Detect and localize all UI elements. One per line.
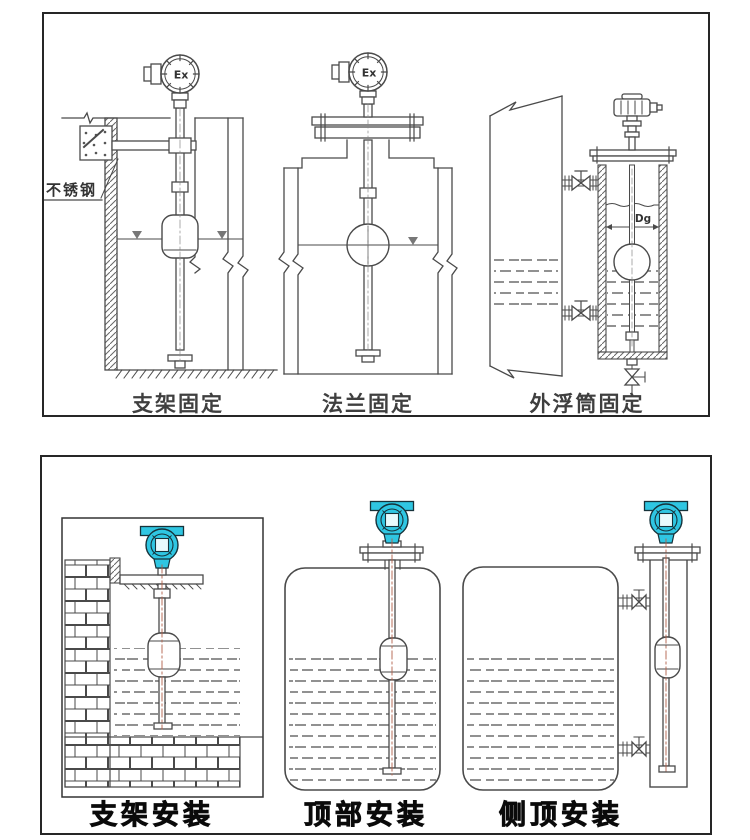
isolation-valve-icon [572, 176, 581, 190]
transmitter-head-icon [645, 502, 688, 544]
liquid [289, 657, 436, 787]
chamber-top-flange [590, 150, 676, 156]
brick-floor [65, 737, 240, 787]
tank-liquid [494, 258, 558, 314]
ex-marking: Ex [362, 67, 377, 80]
liquid [467, 657, 614, 787]
stainless-steel-label: 不锈钢 [46, 181, 97, 199]
mounting-flange [312, 117, 423, 125]
caption-external-chamber-fixing: 外浮筒固定 [530, 392, 645, 415]
caption-bracket-fixing: 支架固定 [132, 392, 224, 415]
mounting-flange [360, 547, 423, 553]
drain-valve-icon [625, 369, 639, 377]
installation-methods-panel: 支架安装 顶部安装 侧顶安装 [40, 455, 712, 835]
float-level-transmitter-installation-figure: Ex 不锈钢 [0, 0, 750, 840]
caption-side-top-mount-install: 侧顶安装 [499, 800, 623, 831]
bracket-fixing-diagram: Ex [44, 55, 277, 378]
installation-methods-drawing: 支架安装 顶部安装 侧顶安装 [42, 457, 710, 833]
fixing-methods-panel: Ex 不锈钢 [42, 12, 710, 417]
external-chamber-fixing-diagram: Dg [490, 94, 676, 396]
caption-flange-fixing: 法兰固定 [322, 392, 414, 415]
top-mount-install-diagram [285, 502, 440, 791]
chamber-diameter-label: Dg [635, 213, 651, 225]
float-body [148, 633, 180, 677]
float-body [655, 637, 680, 678]
mounting-flange [635, 547, 700, 553]
transmitter-head-icon [371, 502, 414, 544]
side-top-mount-install-diagram [463, 502, 700, 791]
ex-transmitter-icon: Ex [144, 55, 199, 93]
chamber-wall [598, 165, 606, 352]
bracket-arm [120, 575, 203, 584]
transmitter-head-icon [614, 99, 650, 116]
isolation-valve-icon [632, 595, 639, 609]
liquid-level-symbol [408, 237, 418, 245]
flange-fixing-diagram: Ex [279, 53, 457, 374]
ex-marking: Ex [174, 69, 189, 82]
caption-bracket-install: 支架安装 [90, 800, 214, 831]
chamber-wall [659, 165, 667, 352]
bracket-install-diagram [62, 518, 263, 797]
caption-top-mount-install: 顶部安装 [304, 799, 428, 831]
isolation-valve-icon [572, 306, 581, 320]
transmitter-head-icon [141, 527, 184, 569]
float-body [380, 638, 407, 680]
isolation-valve-icon [632, 742, 639, 756]
fixing-methods-drawing: Ex 不锈钢 [44, 14, 708, 415]
ex-transmitter-icon: Ex [332, 53, 387, 91]
